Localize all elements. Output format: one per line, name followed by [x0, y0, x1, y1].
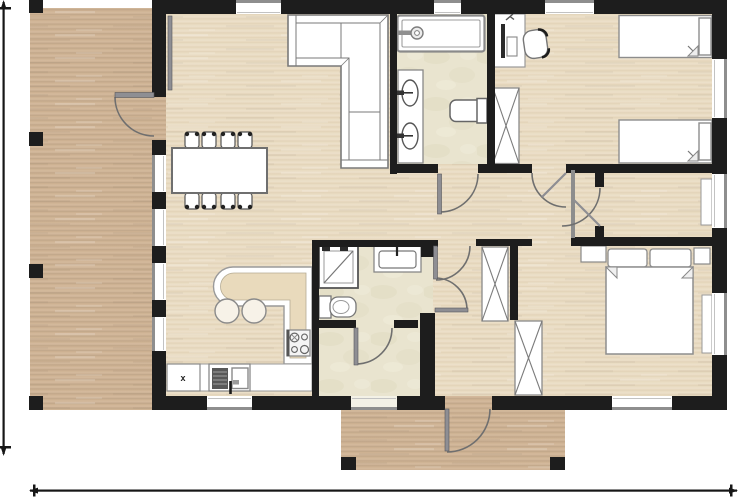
svg-text:x: x — [180, 373, 185, 383]
